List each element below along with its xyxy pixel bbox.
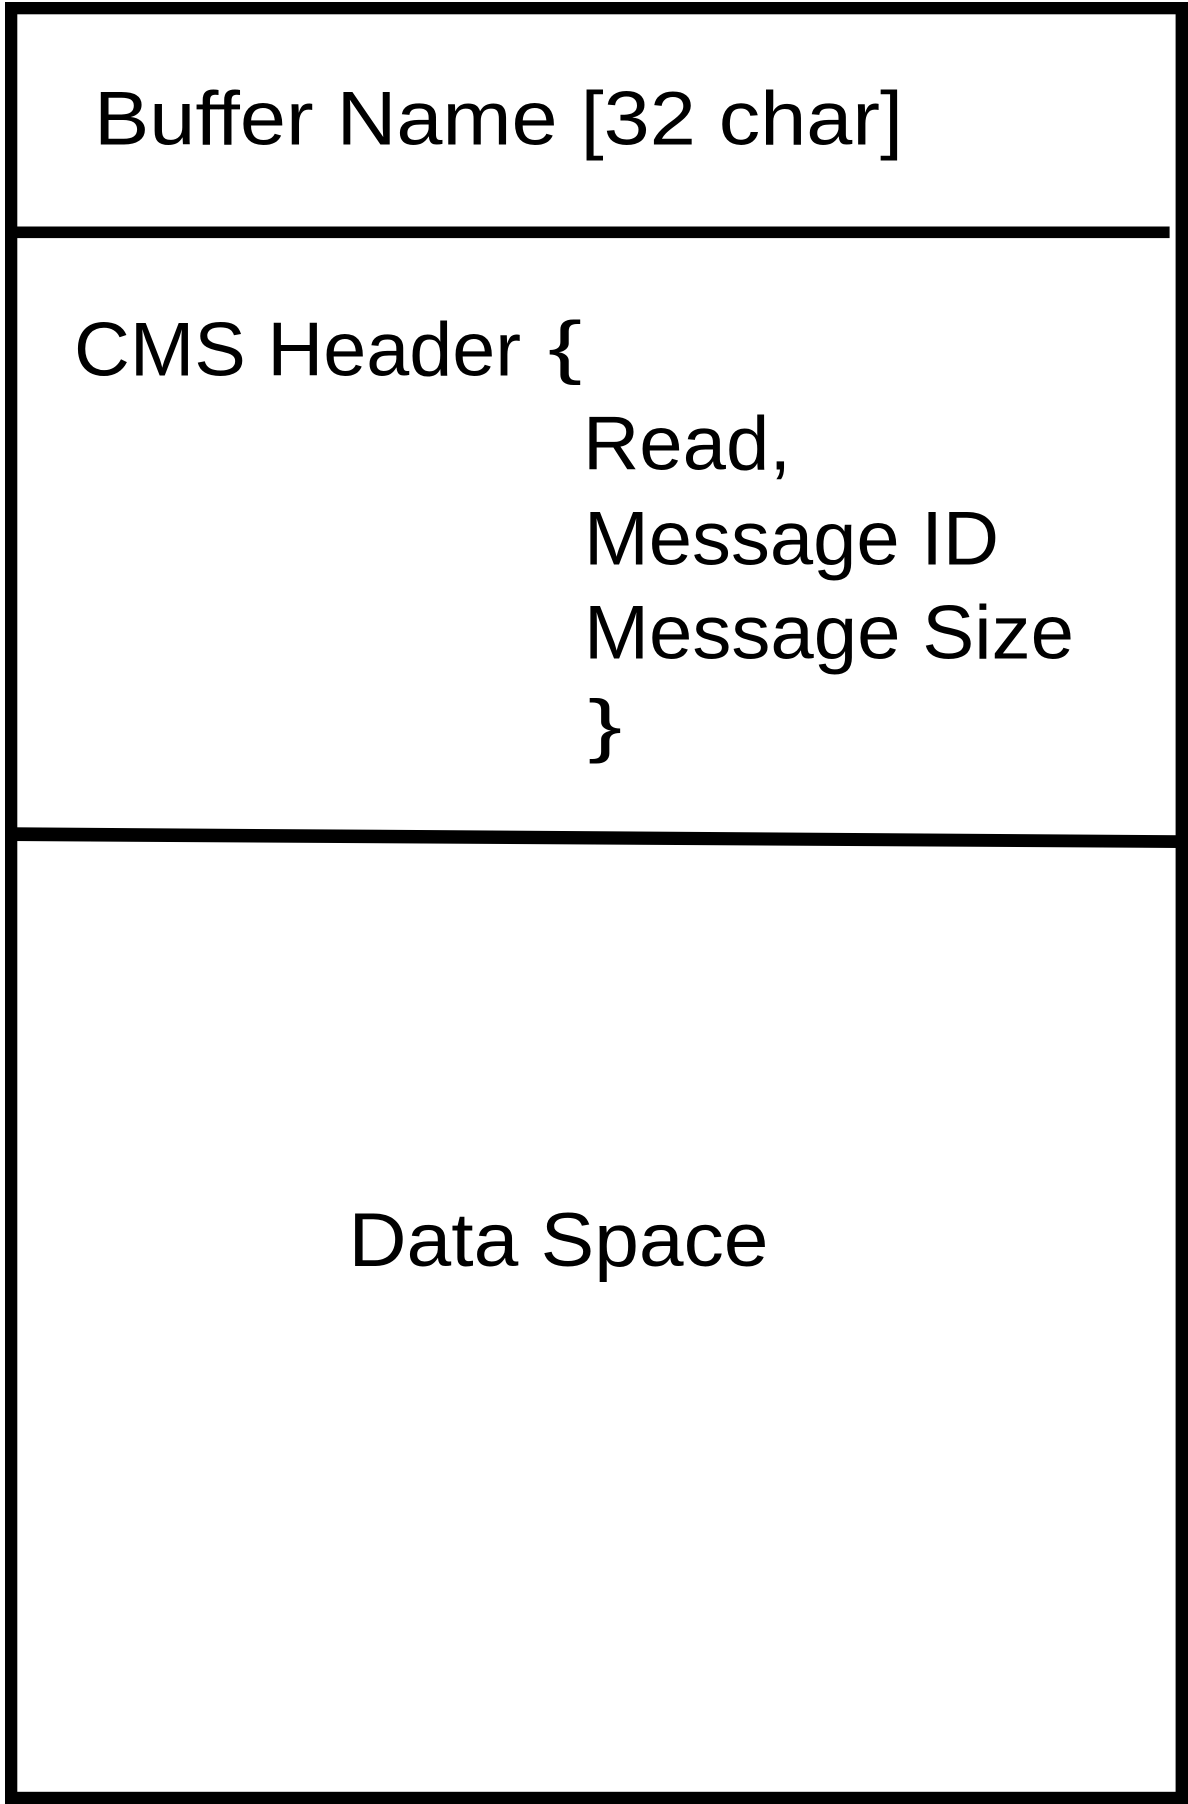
svg-text:Message ID: Message ID [584, 496, 999, 581]
svg-text:Message Size: Message Size [584, 591, 1074, 676]
svg-text:CMS Header: CMS Header [74, 308, 521, 393]
svg-text:Buffer Name [32 char]: Buffer Name [32 char] [94, 77, 903, 162]
svg-text:{: { [548, 307, 582, 386]
svg-text:Read,: Read, [583, 402, 791, 487]
svg-text:Data Space: Data Space [349, 1198, 769, 1283]
svg-text:}: } [588, 685, 622, 764]
